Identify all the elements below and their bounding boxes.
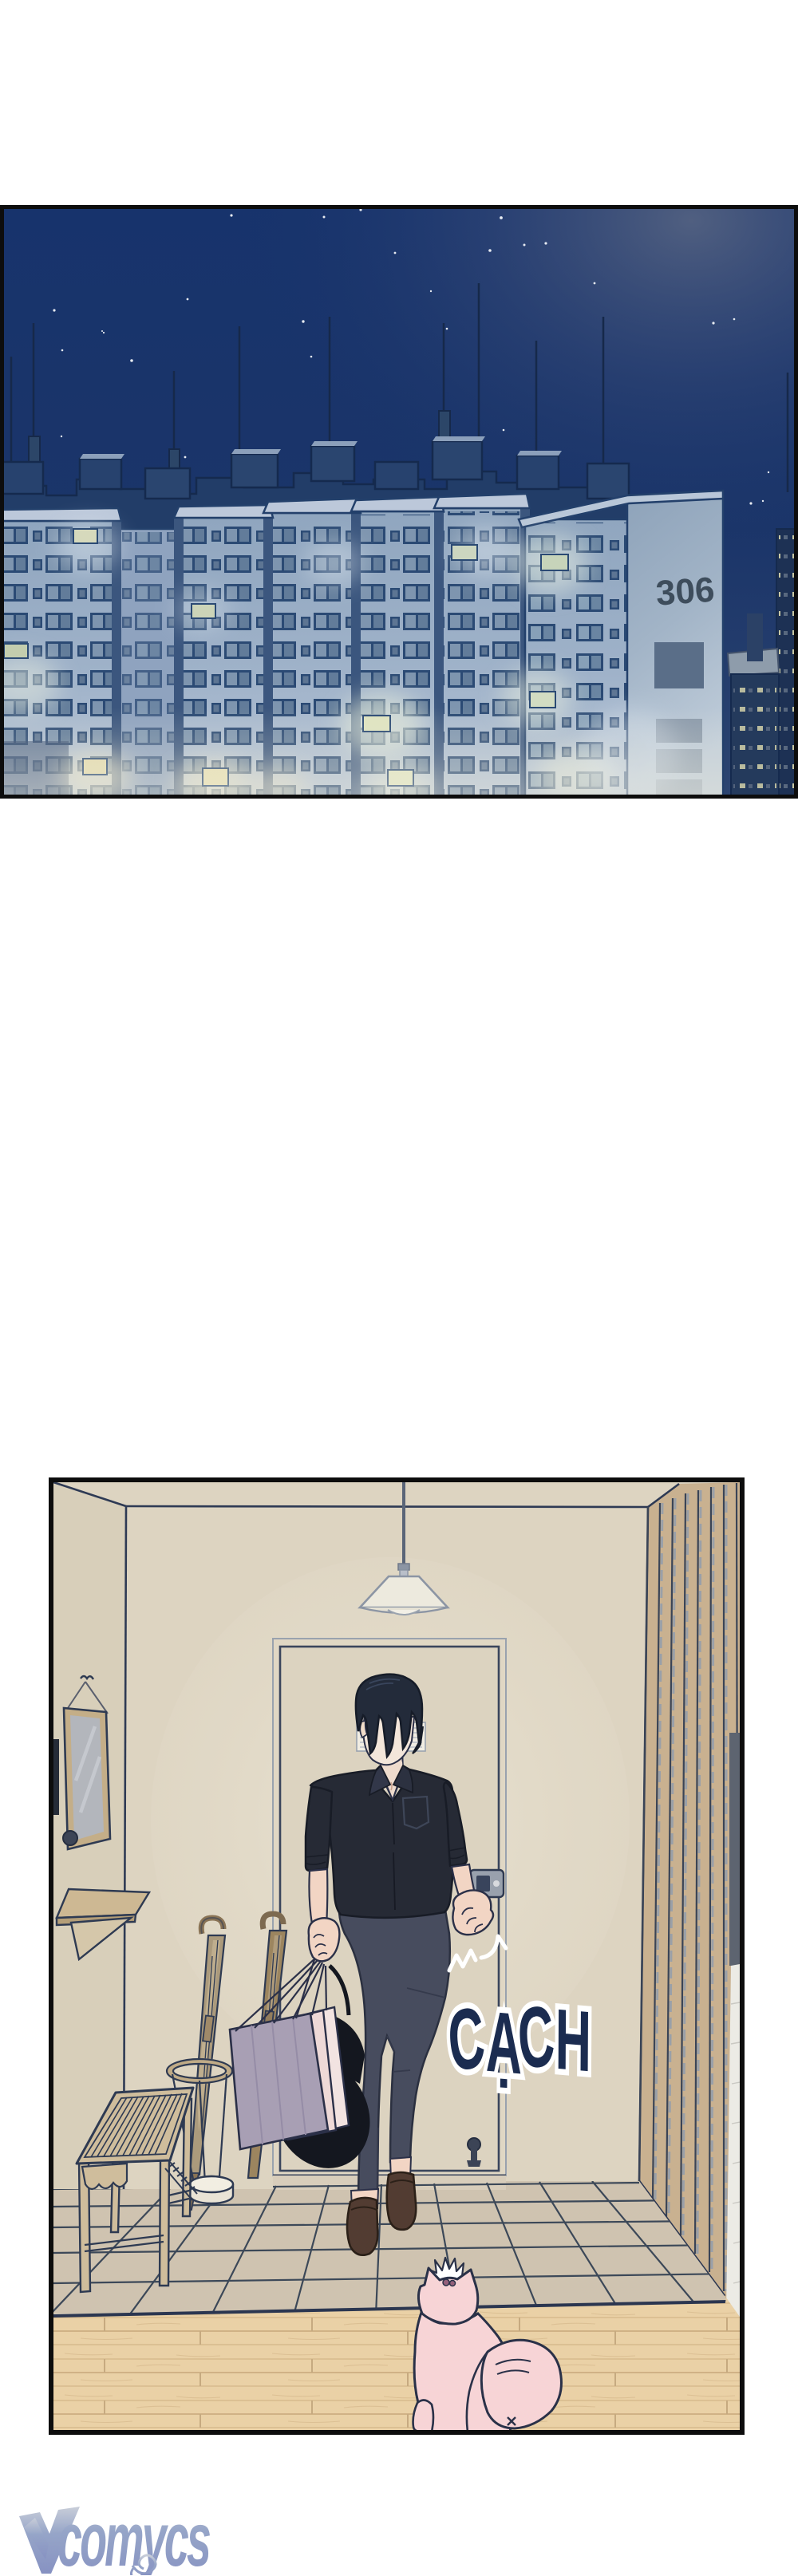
svg-text:comycs: comycs (57, 2496, 210, 2575)
svg-text:306: 306 (654, 570, 716, 613)
svg-text:CẠCH: CẠCH (444, 1984, 594, 2095)
